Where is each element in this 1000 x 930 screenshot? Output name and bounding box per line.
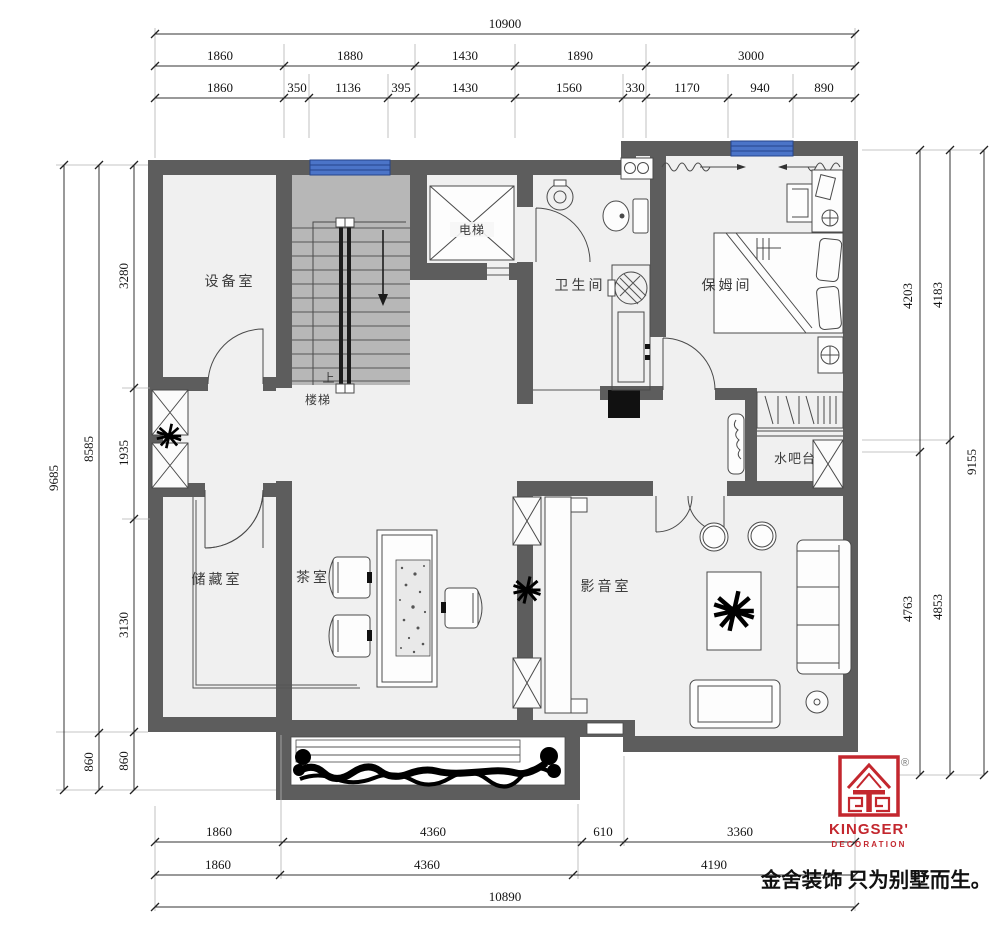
dim: 350: [287, 80, 307, 95]
stool: [700, 523, 728, 551]
label-nanny-room: 保姆间: [702, 277, 753, 293]
label-media-room: 影音室: [581, 578, 632, 594]
dim: 860: [116, 751, 131, 771]
dim: 890: [814, 80, 834, 95]
dim: 1136: [335, 80, 361, 95]
brand-tagline: 金舍装饰 只为别墅而生。: [760, 868, 992, 892]
dimensions-top: 10900 1860 1880 1430 1890 3000 1860 350 …: [151, 16, 859, 158]
dim: 3130: [116, 612, 131, 638]
dim: 4763: [900, 596, 915, 622]
label-tea-room: 茶室: [296, 569, 330, 585]
tea-chair: [329, 557, 372, 598]
dim-top-total: 10900: [489, 16, 522, 31]
radiator-panel: [728, 414, 744, 474]
label-storage-room: 储藏室: [192, 571, 243, 587]
stair-rail: [347, 224, 351, 384]
side-table: [806, 691, 828, 713]
dim: 4360: [420, 824, 446, 839]
sofa: [797, 540, 851, 674]
dim: 4203: [900, 283, 915, 309]
courtyard-planter: [291, 737, 565, 787]
nanny-room-window: [731, 141, 793, 156]
tea-chair: [441, 588, 482, 628]
water-bar-cabinet: [813, 440, 843, 488]
staircase: [292, 174, 410, 393]
dimensions-right: 4203 4763 4183 4853 9155: [862, 146, 988, 779]
dim-left-total: 9685: [46, 465, 61, 491]
dim: 940: [750, 80, 770, 95]
dim: 1860: [205, 857, 231, 872]
dim: 4190: [701, 857, 727, 872]
floor-plan-drawing: 设备室 上 楼梯 电梯 卫生间 保姆间 水吧台 储藏室 茶室 影音室 10900…: [0, 0, 1000, 930]
dim: 860: [81, 752, 96, 772]
label-water-bar: 水吧台: [774, 451, 816, 466]
dim: 4360: [414, 857, 440, 872]
dim: 3000: [738, 48, 764, 63]
dim: 1560: [556, 80, 582, 95]
vent-grille: [621, 158, 653, 179]
dim: 1890: [567, 48, 593, 63]
dim: 4183: [930, 282, 945, 308]
dim: 3280: [116, 263, 131, 289]
media-bench: [690, 680, 780, 728]
label-equipment-room: 设备室: [205, 273, 256, 289]
label-stairs: 楼梯: [305, 392, 331, 407]
label-bathroom: 卫生间: [555, 277, 606, 293]
column: [608, 390, 640, 418]
stair-rail: [339, 224, 343, 384]
tea-chair: [329, 615, 372, 657]
dim: 1170: [674, 80, 700, 95]
dim: 1860: [207, 48, 233, 63]
dim: 1860: [206, 824, 232, 839]
dim-right-total: 9155: [964, 449, 979, 475]
dim: 4853: [930, 594, 945, 620]
dim: 1880: [337, 48, 363, 63]
registered-mark: ®: [901, 757, 909, 769]
coffee-table: [707, 572, 761, 650]
dim: 3360: [727, 824, 753, 839]
stair-window: [310, 160, 390, 175]
label-elevator: 电梯: [459, 223, 485, 237]
label-up: 上: [322, 371, 335, 385]
dim: 1430: [452, 48, 478, 63]
brand-logo: ® KINGSER' DECORATION 金舍装饰 只为别墅而生。: [760, 757, 992, 892]
dim: 610: [593, 824, 613, 839]
stool: [748, 522, 776, 550]
brand-name: KINGSER': [829, 821, 909, 838]
brand-subtitle: DECORATION: [831, 840, 906, 849]
dim-bottom-total: 10890: [489, 889, 522, 904]
nightstand: [818, 337, 843, 373]
dim: 395: [391, 80, 411, 95]
dim: 330: [625, 80, 645, 95]
dim: 8585: [81, 436, 96, 462]
dim: 1935: [116, 440, 131, 466]
dim: 1860: [207, 80, 233, 95]
dim: 1430: [452, 80, 478, 95]
floor-plan-page: 设备室 上 楼梯 电梯 卫生间 保姆间 水吧台 储藏室 茶室 影音室 10900…: [0, 0, 1000, 930]
